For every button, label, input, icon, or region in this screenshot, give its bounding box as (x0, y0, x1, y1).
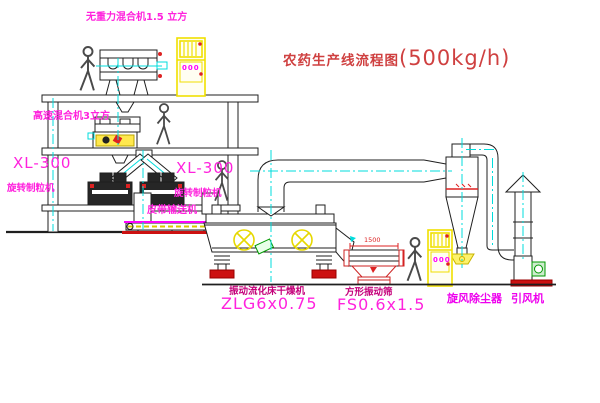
person-figure-roof (80, 47, 94, 90)
flow-diagram-canvas: 农药生产线流程图 (500kg/h) 无重力混合机1.5 立方 高速混合机3立方… (0, 0, 600, 403)
label-belt-conveyor: 皮带输送机 (147, 206, 197, 217)
label-cyclone: 旋风除尘器 (447, 293, 502, 305)
person-figure-floor2 (157, 104, 170, 144)
label-granulator-name-right: 旋转制粒机 (174, 189, 222, 199)
belt-conveyor (122, 222, 218, 234)
title-capacity: (500kg/h) (399, 46, 510, 70)
diagram-title: 农药生产线流程图 (500kg/h) (283, 46, 510, 70)
person-figure-ground (408, 238, 422, 281)
label-fan: 引风机 (511, 293, 544, 305)
high-speed-mixer (88, 117, 140, 163)
label-screen-model: FS0.6x1.5 (337, 297, 425, 314)
exhaust-duct (258, 160, 446, 212)
label-granulator-model-right: XL-300 (176, 161, 234, 177)
dimension-screen-length: 1500 (364, 237, 381, 244)
induced-draft-fan (511, 256, 552, 286)
gravity-free-mixer (96, 50, 167, 112)
label-gravity-free-mixer: 无重力混合机1.5 立方 (86, 13, 187, 24)
label-granulator-model-left: XL-300 (13, 156, 71, 172)
granulator-left (88, 173, 132, 205)
label-high-speed-mixer: 高速混合机3立方 (33, 112, 113, 123)
cabinet-top-indicator: 000 (182, 65, 200, 72)
title-text: 农药生产线流程图 (283, 49, 399, 69)
label-dryer-model: ZLG6x0.75 (221, 296, 318, 313)
label-granulator-name-left: 旋转制粒机 (7, 184, 55, 194)
cabinet-right-indicator: 000 (433, 257, 451, 264)
